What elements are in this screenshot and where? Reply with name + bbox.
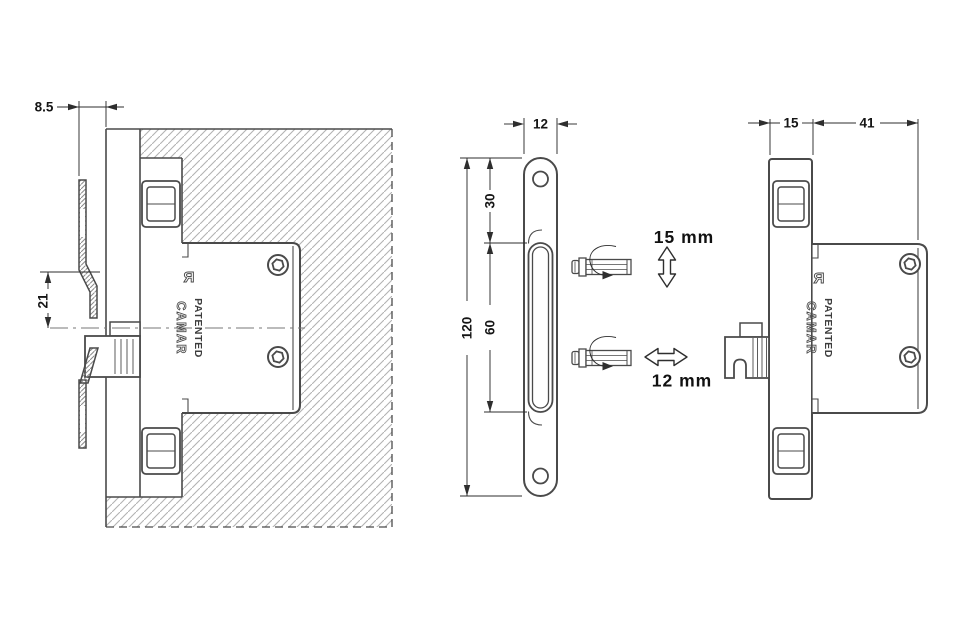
registered-mark: R bbox=[813, 270, 824, 287]
hook-seat bbox=[110, 322, 140, 336]
dim-text-body-depth: 41 bbox=[859, 116, 875, 131]
dim-text-hole-to-slot: 30 bbox=[483, 193, 498, 208]
mounting-hole-top bbox=[533, 172, 548, 187]
bracket-body-step-bottom bbox=[182, 399, 188, 413]
side-view: R CAMAR PATENTED 15 41 bbox=[725, 116, 927, 500]
mounting-hole-bottom bbox=[533, 469, 548, 484]
horizontal-adjustment-arrow-icon bbox=[645, 349, 687, 366]
side-screw-window-top bbox=[773, 181, 809, 227]
wall-plate-slot-gap-bottom bbox=[80, 406, 85, 432]
dimension-body-depth: 41 bbox=[824, 116, 918, 241]
vertical-adjustment-label: 15 mm bbox=[654, 227, 714, 247]
screw-window-top bbox=[142, 181, 180, 227]
brand-name: CAMAR bbox=[804, 301, 818, 355]
bracket-body-step-top bbox=[182, 243, 188, 257]
side-hex-screw-top bbox=[900, 254, 920, 274]
side-screw-window-bottom bbox=[773, 428, 809, 474]
side-hex-screw-bottom bbox=[900, 347, 920, 367]
brand-name: CAMAR bbox=[174, 301, 188, 355]
dimension-plate-depth: 15 bbox=[748, 116, 824, 156]
dim-text-hook-engagement: 21 bbox=[36, 293, 51, 309]
screw-window-bottom bbox=[142, 428, 180, 474]
adjustment-screw-horizontal bbox=[572, 336, 631, 370]
dim-text-plate-width: 12 bbox=[533, 117, 548, 132]
technical-drawing: R CAMAR PATENTED 8.5 21 bbox=[0, 0, 977, 637]
hex-screw-top bbox=[268, 255, 288, 275]
dim-text-plate-offset: 8.5 bbox=[35, 100, 54, 115]
adjustment-screw-vertical bbox=[572, 245, 631, 279]
registered-mark: R bbox=[183, 269, 194, 286]
wall-plate-slot-gap-top bbox=[80, 209, 85, 237]
drawing-canvas: R CAMAR PATENTED 8.5 21 bbox=[0, 0, 977, 637]
dim-text-plate-depth: 15 bbox=[783, 116, 799, 131]
section-view: R CAMAR PATENTED 8.5 21 bbox=[35, 100, 392, 528]
dimension-hole-to-slot: 30 bbox=[483, 158, 498, 243]
brand-patented: PATENTED bbox=[192, 298, 204, 358]
side-hook bbox=[725, 323, 769, 378]
front-view: 12 120 30 60 bbox=[460, 117, 715, 497]
brand-patented: PATENTED bbox=[822, 298, 834, 358]
dimension-plate-offset: 8.5 bbox=[35, 100, 124, 177]
horizontal-adjustment-label: 12 mm bbox=[652, 371, 712, 391]
dimension-slot-length: 60 bbox=[483, 243, 528, 412]
vertical-adjustment-arrow-icon bbox=[659, 247, 676, 287]
dim-text-total-height: 120 bbox=[460, 317, 475, 340]
dimension-plate-width: 12 bbox=[504, 117, 577, 155]
hex-screw-bottom bbox=[268, 347, 288, 367]
dim-text-slot-length: 60 bbox=[483, 320, 498, 335]
wall-plate-upper bbox=[79, 180, 97, 318]
